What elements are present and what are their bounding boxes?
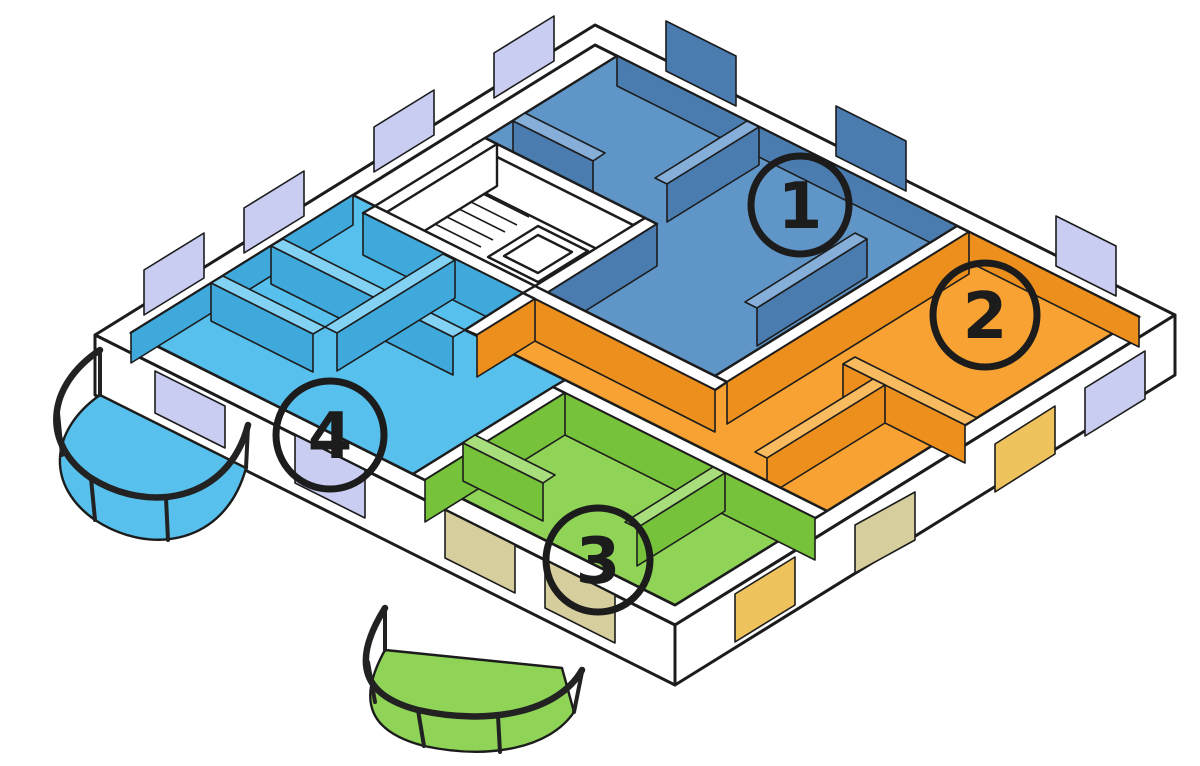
unit-1-number: 1 — [778, 170, 823, 244]
unit-4-number: 4 — [308, 400, 353, 474]
unit-2-number: 2 — [963, 280, 1008, 354]
unit-3-number: 3 — [576, 525, 621, 599]
floor-plan-canvas: 1 2 3 4 — [0, 0, 1200, 766]
unit-3-balcony — [366, 608, 582, 752]
